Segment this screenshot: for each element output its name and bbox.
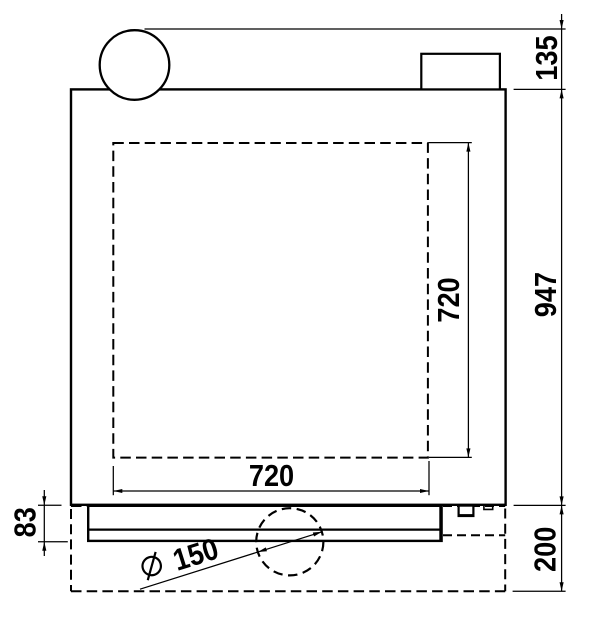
- svg-text:720: 720: [249, 460, 294, 494]
- svg-text:720: 720: [433, 277, 467, 322]
- svg-text:83: 83: [9, 507, 43, 537]
- svg-text:135: 135: [530, 35, 564, 80]
- svg-text:200: 200: [529, 527, 563, 572]
- svg-text:947: 947: [529, 272, 563, 317]
